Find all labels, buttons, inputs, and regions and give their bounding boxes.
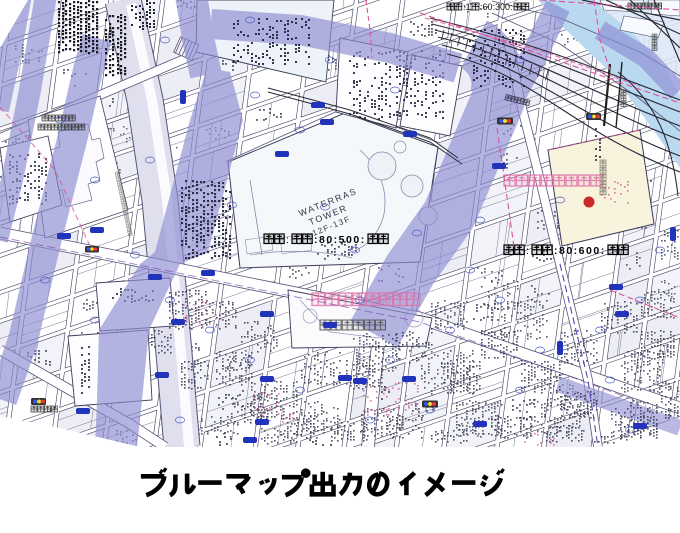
svg-text::60:300:: :60:300:	[480, 2, 513, 12]
svg-text::1: :1	[463, 2, 471, 12]
svg-text::: :	[286, 234, 289, 246]
svg-text::80:500:: :80:500:	[314, 234, 366, 246]
svg-text::80:600:: :80:600:	[554, 245, 606, 257]
svg-text::: :	[526, 245, 529, 257]
